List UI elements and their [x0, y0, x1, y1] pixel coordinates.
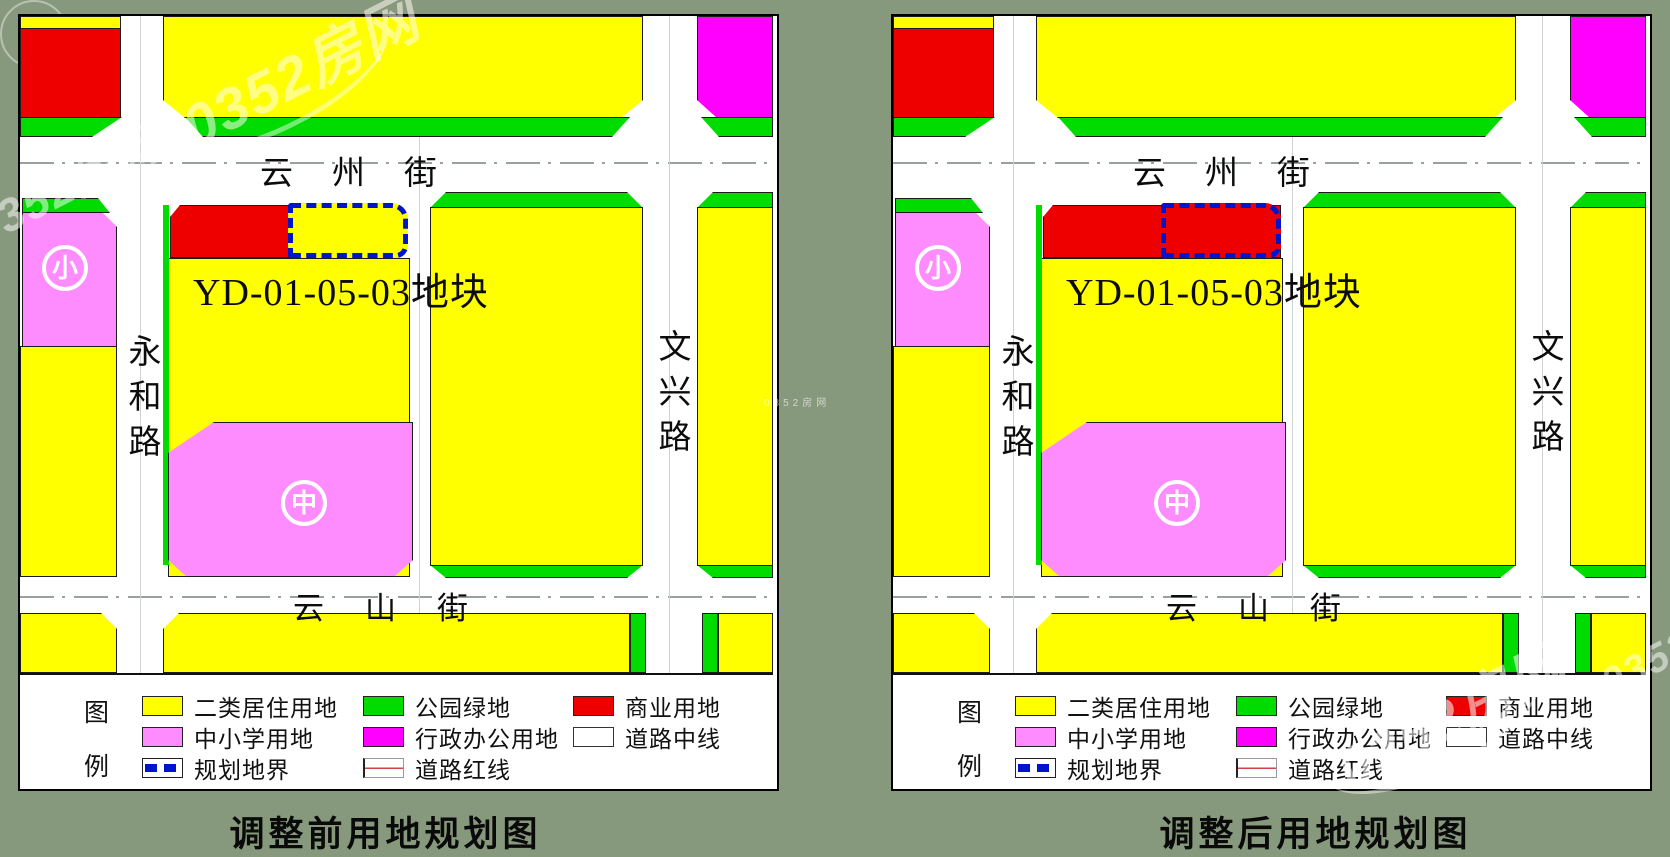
admin-swatch: [1236, 727, 1277, 747]
block-residential: [1591, 613, 1646, 673]
plot-label: YD-01-05-03地块: [193, 261, 489, 316]
block-park-strip: [697, 192, 773, 208]
legend-title: 图 例: [84, 693, 109, 783]
block-commercial: [893, 28, 994, 118]
small-school-marker: 小: [915, 245, 961, 291]
caption-after: 调整后用地规划图: [937, 806, 1670, 857]
block-residential: [20, 346, 117, 577]
residential-swatch: [1015, 696, 1056, 716]
legend-label: 道路红线: [415, 751, 511, 785]
legend-item-commercial: 商业用地: [1446, 689, 1594, 723]
block-park-strip: [1570, 565, 1646, 578]
legend-label: 商业用地: [625, 689, 721, 723]
middle-school-marker: 中: [281, 480, 327, 526]
block-commercial: [170, 205, 294, 258]
block-park-strip: [1303, 192, 1516, 208]
legend-label: 道路中线: [625, 720, 721, 754]
legend-label: 规划地界: [1067, 751, 1163, 785]
block-park-strip: [697, 565, 773, 578]
legend-item-admin: 行政办公用地: [363, 720, 559, 754]
commercial-swatch: [1446, 696, 1487, 716]
block-park-strip: [1574, 117, 1646, 137]
commercial-swatch: [573, 696, 614, 716]
street-label-yunshan: 云山街: [293, 583, 509, 628]
legend-title: 图 例: [957, 693, 982, 783]
park-swatch: [363, 696, 404, 716]
block-park-strip: [1503, 613, 1519, 673]
block-residential: [718, 613, 773, 673]
road-centerline-swatch: [1446, 727, 1487, 747]
block-park-strip: [20, 117, 122, 137]
block-park-strip: [430, 565, 643, 578]
block-residential: [20, 613, 117, 673]
legend-item-residential: 二类居住用地: [142, 689, 338, 723]
legend-item-park: 公园绿地: [363, 689, 511, 723]
block-residential: [893, 346, 990, 577]
block-park-strip: [1058, 117, 1503, 137]
legend-item-commercial: 商业用地: [573, 689, 721, 723]
block-admin-office: [697, 16, 773, 118]
block-residential: [893, 613, 990, 673]
legend-label: 公园绿地: [415, 689, 511, 723]
map-after-drawing: 云州街 云山街 永和路 文兴路 YD-01-05-03地块 小 中: [893, 16, 1646, 673]
road-label-yonghe: 永和路: [994, 334, 1034, 469]
legend-label: 中小学用地: [1067, 720, 1187, 754]
legend-label: 规划地界: [194, 751, 290, 785]
block-park-strip: [1570, 192, 1646, 208]
legend-label: 二类居住用地: [194, 689, 338, 723]
legend-label: 商业用地: [1498, 689, 1594, 723]
block-park-strip: [1575, 613, 1591, 673]
street-label-yunzhou: 云州街: [1133, 146, 1349, 194]
boundary-swatch: [1015, 758, 1056, 778]
legend-item-admin: 行政办公用地: [1236, 720, 1432, 754]
block-park-strip: [185, 117, 630, 137]
block-park-strip: [895, 198, 983, 213]
block-park-strip: [22, 198, 110, 213]
block-commercial: [20, 28, 121, 118]
school-swatch: [1015, 727, 1056, 747]
legend-title-char: 例: [957, 747, 982, 783]
road-label-yonghe: 永和路: [121, 334, 161, 469]
legend-item-road-centerline: 道路中线: [573, 720, 721, 754]
legend-label: 行政办公用地: [1288, 720, 1432, 754]
legend-item-school: 中小学用地: [142, 720, 314, 754]
block-residential: [1036, 16, 1516, 118]
legend-label: 道路红线: [1288, 751, 1384, 785]
legend-title-char: 图: [84, 693, 109, 729]
street-label-yunzhou: 云州街: [260, 146, 476, 194]
legend-title-char: 例: [84, 747, 109, 783]
legend-label: 道路中线: [1498, 720, 1594, 754]
legend-item-boundary: 规划地界: [142, 751, 290, 785]
legend-after: 图 例 二类居住用地 中小学用地 规划地界 公园绿地 行政办公用地 道路红线: [893, 673, 1646, 787]
legend-title-char: 图: [957, 693, 982, 729]
legend-item-road-redline: 道路红线: [1236, 751, 1384, 785]
legend-item-road-redline: 道路红线: [363, 751, 511, 785]
planning-boundary-rect: [1161, 203, 1281, 258]
road-redline-swatch: [363, 758, 404, 778]
map-after-panel: 云州街 云山街 永和路 文兴路 YD-01-05-03地块 小 中 图 例 二类…: [891, 14, 1652, 791]
legend-label: 公园绿地: [1288, 689, 1384, 723]
school-swatch: [142, 727, 183, 747]
legend-item-residential: 二类居住用地: [1015, 689, 1211, 723]
road-centerline-swatch: [573, 727, 614, 747]
legend-item-boundary: 规划地界: [1015, 751, 1163, 785]
street-label-yunshan: 云山街: [1166, 583, 1382, 628]
legend-item-park: 公园绿地: [1236, 689, 1384, 723]
block-admin-office: [1570, 16, 1646, 118]
caption-before: 调整前用地规划图: [7, 806, 764, 857]
plot-label: YD-01-05-03地块: [1066, 261, 1362, 316]
small-school-marker: 小: [42, 245, 88, 291]
road-label-wenxing: 文兴路: [651, 329, 691, 464]
boundary-swatch: [142, 758, 183, 778]
block-park-strip: [701, 117, 773, 137]
block-residential: [1570, 207, 1646, 566]
block-residential: [163, 16, 643, 118]
road-redline-swatch: [1236, 758, 1277, 778]
legend-item-road-centerline: 道路中线: [1446, 720, 1594, 754]
map-before-panel: 云州街 云山街 永和路 文兴路 YD-01-05-03地块 小 中 图 例 二类…: [18, 14, 779, 791]
park-swatch: [1236, 696, 1277, 716]
block-park-strip: [702, 613, 718, 673]
legend-label: 二类居住用地: [1067, 689, 1211, 723]
map-before-drawing: 云州街 云山街 永和路 文兴路 YD-01-05-03地块 小 中: [20, 16, 773, 673]
block-park-strip: [1303, 565, 1516, 578]
legend-item-school: 中小学用地: [1015, 720, 1187, 754]
road-label-wenxing: 文兴路: [1524, 329, 1564, 464]
admin-swatch: [363, 727, 404, 747]
planning-boundary-rect: [288, 203, 408, 258]
residential-swatch: [142, 696, 183, 716]
block-park-strip: [893, 117, 995, 137]
block-residential: [697, 207, 773, 566]
block-park-strip: [430, 192, 643, 208]
block-park-strip: [630, 613, 646, 673]
legend-label: 中小学用地: [194, 720, 314, 754]
legend-before: 图 例 二类居住用地 中小学用地 规划地界 公园绿地 行政办公用地 道路红线: [20, 673, 773, 787]
legend-label: 行政办公用地: [415, 720, 559, 754]
middle-school-marker: 中: [1154, 480, 1200, 526]
